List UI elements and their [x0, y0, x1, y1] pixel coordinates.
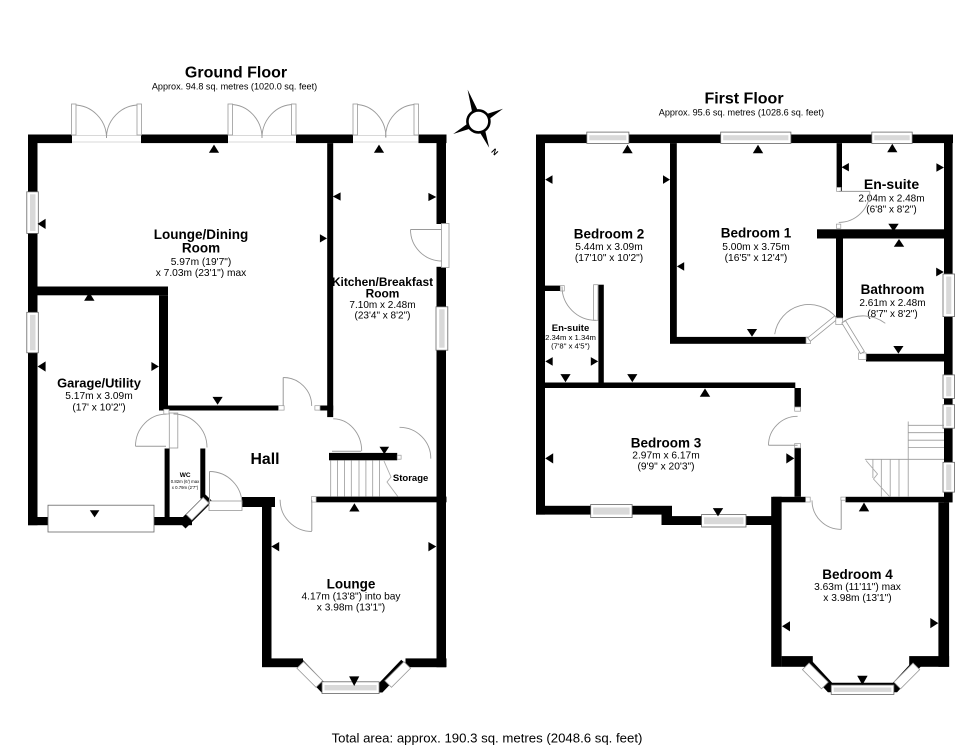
svg-text:En-suite: En-suite [864, 176, 919, 192]
svg-text:2.97m x 6.17m: 2.97m x 6.17m [632, 450, 699, 461]
svg-text:Storage: Storage [393, 473, 428, 484]
svg-text:WC: WC [180, 472, 191, 479]
svg-text:x 3.98m (13'1"): x 3.98m (13'1") [823, 593, 891, 604]
svg-text:0.82m (6') max: 0.82m (6') max [171, 479, 200, 484]
svg-text:5.97m (19'7"): 5.97m (19'7") [171, 257, 232, 268]
svg-text:4.17m (13'8") into bay: 4.17m (13'8") into bay [302, 591, 402, 602]
svg-text:Hall: Hall [251, 451, 280, 468]
svg-text:(7'8" x 4'5"): (7'8" x 4'5") [551, 341, 590, 350]
svg-text:5.17m x 3.09m: 5.17m x 3.09m [65, 391, 132, 402]
svg-text:(9'9" x 20'3"): (9'9" x 20'3") [638, 462, 695, 473]
svg-text:7.10m x 2.48m: 7.10m x 2.48m [349, 300, 415, 311]
svg-text:First Floor: First Floor [704, 91, 783, 108]
svg-text:2.61m x 2.48m: 2.61m x 2.48m [859, 298, 925, 309]
svg-text:N: N [489, 147, 500, 158]
svg-text:x 0.79m (2'7"): x 0.79m (2'7") [172, 485, 199, 490]
svg-text:5.00m x 3.75m: 5.00m x 3.75m [722, 242, 789, 253]
svg-text:Approx. 94.8 sq. metres (1020.: Approx. 94.8 sq. metres (1020.0 sq. feet… [152, 82, 317, 92]
svg-text:Bedroom 2: Bedroom 2 [574, 226, 645, 241]
svg-text:Bedroom 4: Bedroom 4 [822, 567, 893, 582]
svg-text:(16'5" x 12'4"): (16'5" x 12'4") [725, 253, 788, 264]
svg-text:Lounge: Lounge [327, 577, 376, 592]
svg-text:Bedroom 1: Bedroom 1 [721, 225, 792, 240]
svg-text:Garage/Utility: Garage/Utility [57, 376, 142, 391]
svg-text:(23'4" x 8'2"): (23'4" x 8'2") [355, 311, 411, 322]
svg-text:Total area: approx. 190.3 sq.: Total area: approx. 190.3 sq. metres (20… [332, 731, 643, 746]
svg-text:(17' x 10'2"): (17' x 10'2") [72, 402, 125, 413]
svg-text:Bedroom 3: Bedroom 3 [631, 435, 702, 450]
svg-text:Room: Room [182, 241, 220, 256]
svg-text:Approx. 95.6 sq. metres (1028.: Approx. 95.6 sq. metres (1028.6 sq. feet… [659, 108, 824, 118]
svg-text:3.63m (11'11") max: 3.63m (11'11") max [814, 582, 901, 593]
svg-text:x 7.03m (23'1") max: x 7.03m (23'1") max [156, 268, 247, 279]
svg-text:(6'8" x 8'2"): (6'8" x 8'2") [866, 204, 916, 215]
svg-text:Room: Room [366, 287, 400, 301]
svg-text:2.04m x 2.48m: 2.04m x 2.48m [858, 193, 924, 204]
svg-text:5.44m x 3.09m: 5.44m x 3.09m [575, 242, 642, 253]
svg-text:Bathroom: Bathroom [861, 282, 925, 297]
svg-text:Ground Floor: Ground Floor [185, 65, 287, 82]
svg-text:x 3.98m (13'1"): x 3.98m (13'1") [317, 602, 385, 613]
svg-text:(17'10" x 10'2"): (17'10" x 10'2") [575, 253, 643, 264]
